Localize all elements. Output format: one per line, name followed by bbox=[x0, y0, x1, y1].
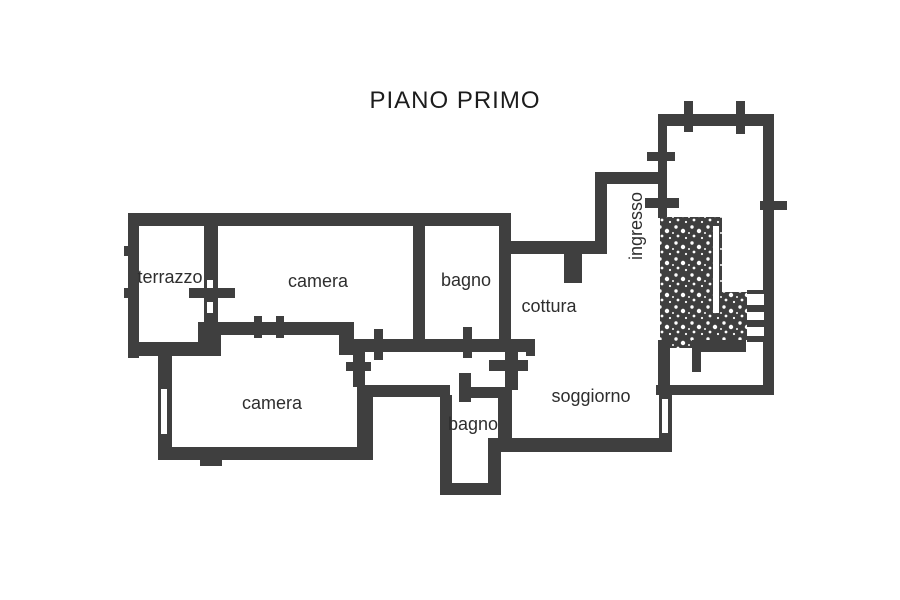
room-label-bagno-bottom: bagno bbox=[413, 412, 533, 436]
room-label-camera-top: camera bbox=[258, 269, 378, 293]
room-label-ingresso: ingresso bbox=[624, 166, 648, 286]
room-label-bagno-top: bagno bbox=[406, 268, 526, 292]
room-label-terrazzo: terrazzo bbox=[110, 265, 230, 289]
floorplan-page: PIANO PRIMO bbox=[0, 0, 900, 600]
room-label-camera-bottom: camera bbox=[212, 391, 332, 415]
floor-plan-drawing bbox=[0, 0, 900, 600]
staircase bbox=[658, 217, 764, 395]
room-label-cottura: cottura bbox=[489, 294, 609, 318]
room-label-soggiorno: soggiorno bbox=[531, 384, 651, 408]
